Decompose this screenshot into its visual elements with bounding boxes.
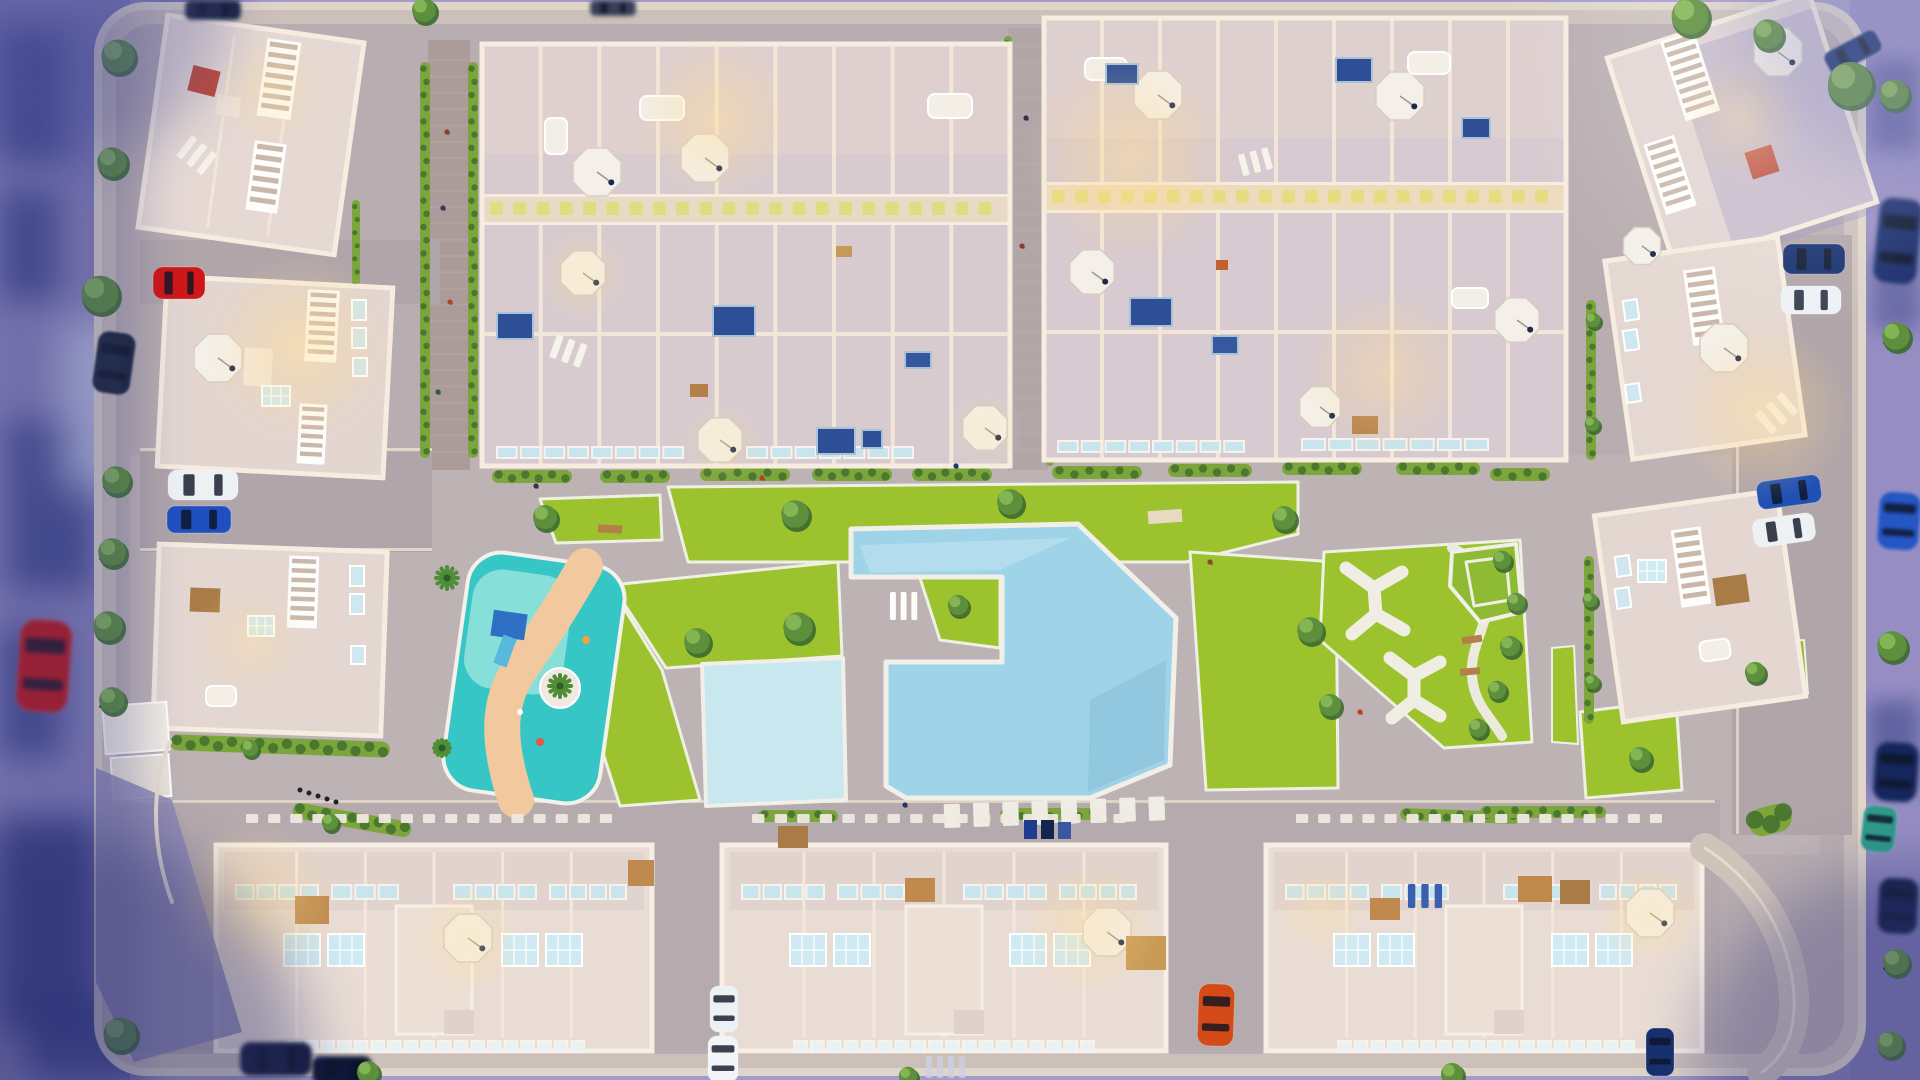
window-glow xyxy=(212,32,332,152)
street-table-set xyxy=(778,826,808,848)
window-glow xyxy=(1595,860,1705,970)
pergola-posts xyxy=(246,814,612,823)
bike-rack xyxy=(325,797,330,802)
waste-bin xyxy=(1041,820,1054,839)
glass-skylight xyxy=(713,306,755,336)
skylight xyxy=(790,934,826,966)
pool-float xyxy=(517,709,523,715)
bike-rack xyxy=(307,791,312,796)
window-glow xyxy=(190,580,310,700)
terrace-rug xyxy=(836,246,852,257)
window-glow xyxy=(680,400,764,484)
window-glow xyxy=(1025,53,1235,263)
window-glow xyxy=(1672,322,1852,502)
pool-float xyxy=(536,738,544,746)
skylight xyxy=(546,934,582,966)
car-dark-top xyxy=(590,0,636,16)
hedge-strip xyxy=(1490,468,1550,481)
jacuzzi xyxy=(1699,638,1731,662)
window xyxy=(350,594,364,614)
glass-skylight xyxy=(905,352,931,368)
car-white xyxy=(168,470,238,500)
terrace-rug xyxy=(905,878,935,902)
terrace-loungers xyxy=(1408,884,1442,908)
car-teal-street xyxy=(1860,804,1899,853)
car-navy xyxy=(1646,1028,1674,1076)
roof-dining-set xyxy=(1712,574,1750,606)
glass-skylight xyxy=(862,430,882,448)
window-glow xyxy=(945,390,1025,470)
glass-skylight xyxy=(1336,58,1372,82)
jacuzzi xyxy=(1408,52,1450,74)
hedge-strip xyxy=(492,470,572,483)
car-white-bottom xyxy=(708,1036,738,1080)
jacuzzi xyxy=(928,94,972,118)
parasol xyxy=(573,148,621,196)
hedge-vertical xyxy=(468,62,478,458)
scene-canvas xyxy=(0,0,1920,1080)
window-glow xyxy=(413,885,523,995)
pool-shelf-loungers xyxy=(890,592,917,620)
window xyxy=(351,646,365,664)
glass-skylight xyxy=(817,428,855,454)
skylight xyxy=(1378,934,1414,966)
parasol xyxy=(1376,72,1424,120)
pergola-posts xyxy=(752,814,1126,823)
car-white-bottom xyxy=(710,986,738,1032)
window-glow xyxy=(1020,858,1160,998)
bench xyxy=(598,524,622,533)
corridor-wall xyxy=(482,222,1010,225)
hedge-strip xyxy=(1396,462,1480,475)
lap-pool xyxy=(702,658,846,806)
stair-core-notch xyxy=(1494,1010,1524,1034)
aerial-site-render xyxy=(0,0,1920,1080)
window-glow xyxy=(636,40,796,200)
window-glow xyxy=(1270,856,1370,956)
glass-skylight xyxy=(1130,298,1172,326)
car-blue xyxy=(167,506,231,533)
terrace-rug xyxy=(1370,898,1400,920)
hedge-strip xyxy=(1168,464,1252,477)
bike-rack xyxy=(316,794,321,799)
van-white xyxy=(1781,286,1841,314)
jacuzzi xyxy=(1452,288,1488,308)
roof-dining-set xyxy=(1560,880,1590,904)
hedge-vertical xyxy=(420,62,430,458)
window xyxy=(1615,587,1632,609)
hedge-vertical xyxy=(1584,556,1594,724)
stair-core-notch xyxy=(954,1010,984,1034)
car-blue-street xyxy=(1876,491,1920,552)
skylight xyxy=(1552,934,1588,966)
hedge-strip xyxy=(812,468,892,481)
window xyxy=(350,566,364,586)
bike-rack xyxy=(298,788,303,793)
window-row xyxy=(837,884,905,900)
skylight xyxy=(1638,560,1666,582)
window-glow xyxy=(1300,287,1470,457)
hedge-strip xyxy=(912,468,992,481)
glass-skylight xyxy=(497,313,533,339)
window xyxy=(1615,555,1632,577)
skylight xyxy=(834,934,870,966)
waste-bin xyxy=(1024,820,1037,839)
bike-rack xyxy=(334,800,339,805)
skylight xyxy=(328,934,364,966)
lawn-strip-east xyxy=(1552,646,1578,744)
sun-towel xyxy=(1148,509,1183,524)
corridor-wall xyxy=(482,194,1010,197)
window xyxy=(1625,383,1641,403)
terrace-rug xyxy=(628,860,654,886)
window xyxy=(1623,329,1640,351)
pool-float xyxy=(582,636,590,644)
water-play-structure xyxy=(490,610,527,640)
car-orange xyxy=(1197,983,1235,1046)
window-glow xyxy=(535,228,631,324)
window-row xyxy=(331,884,399,900)
hedge-strip xyxy=(1282,462,1362,475)
waste-bin xyxy=(1058,822,1071,839)
glass-skylight xyxy=(1462,118,1490,138)
car-red xyxy=(153,267,205,299)
parasol xyxy=(1495,298,1539,342)
terrace-rug xyxy=(1518,876,1552,902)
unit-wall-h xyxy=(1044,330,1566,334)
pergola-posts xyxy=(1296,814,1662,823)
terrace-rug xyxy=(690,384,708,397)
lawn-east-of-pool xyxy=(1190,552,1338,790)
window xyxy=(1623,299,1640,321)
hedge-strip xyxy=(1052,466,1142,479)
glass-skylight xyxy=(1212,336,1238,354)
stair-core-notch xyxy=(444,1010,474,1034)
window-glow xyxy=(205,253,395,443)
terrace-chair xyxy=(1216,260,1228,270)
jacuzzi xyxy=(545,118,567,154)
hedge-strip xyxy=(600,470,670,483)
car-navy-street xyxy=(1872,741,1920,804)
